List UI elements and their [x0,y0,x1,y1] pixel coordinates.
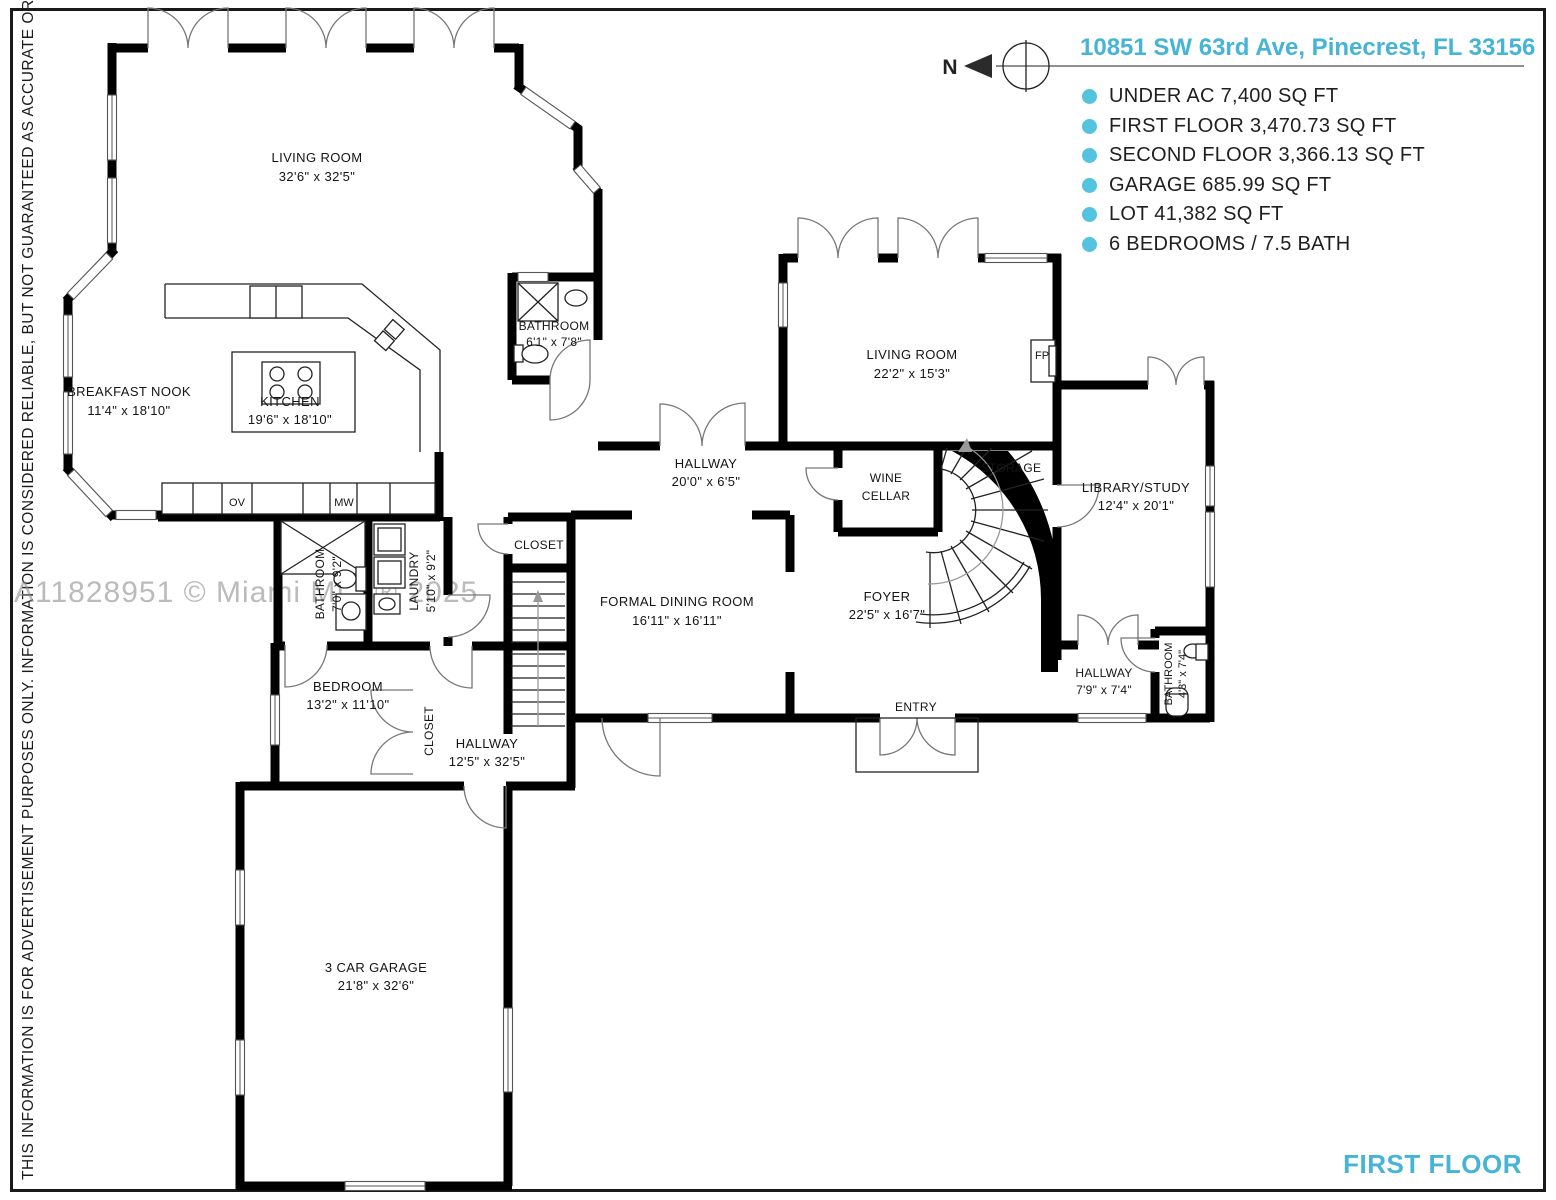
room-dims-hallway-right: 7'9" x 7'4" [1076,683,1132,697]
north-label: N [942,56,957,79]
room-label-closet-hall: CLOSET [514,538,564,552]
room-label-living-room-1: LIVING ROOM [271,150,362,165]
laundry-sink [374,594,400,614]
room-dims-bathroom-mid: 7'0" x 9'2" [330,556,344,612]
bullet-icon [1082,178,1097,193]
room-dims-garage: 21'8" x 32'6" [338,978,415,993]
room-label-bathroom-mid: BATHROOM [313,549,327,620]
toilet-tank [356,567,366,591]
room-dims-hallway-lower: 12'5" x 32'5" [449,754,526,769]
room-label-storage: STORAGE [981,461,1042,475]
floorplan-page: THIS INFORMATION IS FOR ADVERTISEMENT PU… [0,0,1556,1200]
stat-garage: GARAGE 685.99 SQ FT [1082,171,1425,201]
stair-direction-arrow [533,590,543,602]
room-label-entry: ENTRY [895,700,937,714]
stat-label: GARAGE 685.99 SQ FT [1109,174,1331,197]
room-label-bathroom-upper: BATHROOM [519,319,590,333]
room-label-foyer: FOYER [864,589,911,604]
bullet-icon [1082,119,1097,134]
room-label-hallway-lower: HALLWAY [456,736,519,751]
room-label-kitchen: KITCHEN [260,394,320,409]
room-dims-bedroom: 13'2" x 11'10" [306,697,389,712]
stat-label: 6 BEDROOMS / 7.5 BATH [1109,233,1351,256]
entry-step [856,718,978,772]
room-dims-bathroom-upper: 6'1" x 7'8" [526,335,582,349]
room-label-bedroom: BEDROOM [313,679,383,694]
room-dims-laundry: 5'10" x 9'2" [424,550,438,613]
room-dims-hallway-main: 20'0" x 6'5" [672,474,741,489]
room-label-hallway-right: HALLWAY [1075,666,1132,680]
oven-label: OV [229,497,246,509]
fireplace-label: FP [1035,350,1049,362]
stat-beds-baths: 6 BEDROOMS / 7.5 BATH [1082,230,1425,260]
bullet-icon [1082,89,1097,104]
room-dims-living-room-2: 22'2" x 15'3" [874,366,951,381]
room-label-wine-cellar-2: CELLAR [862,489,911,503]
floor-name-label: FIRST FLOOR [1343,1149,1522,1180]
stat-label: UNDER AC 7,400 SQ FT [1109,85,1338,108]
room-label-bathroom-right: BATHROOM [1163,643,1175,706]
room-dims-bathroom-right: 4'3" x 7'4" [1177,650,1189,698]
stat-label: FIRST FLOOR 3,470.73 SQ FT [1109,115,1397,138]
kitchen-sink [374,320,404,351]
room-label-living-room-2: LIVING ROOM [866,347,957,362]
room-dims-breakfast-nook: 11'4" x 18'10" [87,403,170,418]
room-label-garage: 3 CAR GARAGE [325,960,427,975]
bullet-icon [1082,207,1097,222]
room-label-laundry: LAUNDRY [407,551,421,610]
counter-row [162,483,435,514]
bullet-icon [1082,148,1097,163]
room-dims-library: 12'4" x 20'1" [1098,498,1175,513]
room-label-library: LIBRARY/STUDY [1082,480,1190,495]
stat-first-floor: FIRST FLOOR 3,470.73 SQ FT [1082,112,1425,142]
stat-label: LOT 41,382 SQ FT [1109,203,1284,226]
room-label-hallway-main: HALLWAY [675,456,738,471]
room-dims-formal-dining: 16'11" x 16'11" [632,613,722,628]
property-address: 10851 SW 63rd Ave, Pinecrest, FL 33156 [1080,34,1535,62]
room-label-breakfast-nook: BREAKFAST NOOK [67,384,191,399]
microwave-label: MW [334,497,354,509]
stat-second-floor: SECOND FLOOR 3,366.13 SQ FT [1082,141,1425,171]
sink [565,290,587,306]
property-stats-list: UNDER AC 7,400 SQ FT FIRST FLOOR 3,470.7… [1082,82,1425,259]
room-dims-foyer: 22'5" x 16'7" [849,607,926,622]
stat-lot: LOT 41,382 SQ FT [1082,200,1425,230]
room-dims-living-room-1: 32'6" x 32'5" [279,169,356,184]
room-label-formal-dining: FORMAL DINING ROOM [600,594,754,609]
bullet-icon [1082,237,1097,252]
stat-under-ac: UNDER AC 7,400 SQ FT [1082,82,1425,112]
room-dims-kitchen: 19'6" x 18'10" [248,412,332,427]
stat-label: SECOND FLOOR 3,366.13 SQ FT [1109,144,1425,167]
room-label-closet-bedroom: CLOSET [422,706,436,756]
curved-stair-wall [952,451,1058,672]
straight-staircase [511,582,565,726]
room-label-wine-cellar-1: WINE [870,471,903,485]
